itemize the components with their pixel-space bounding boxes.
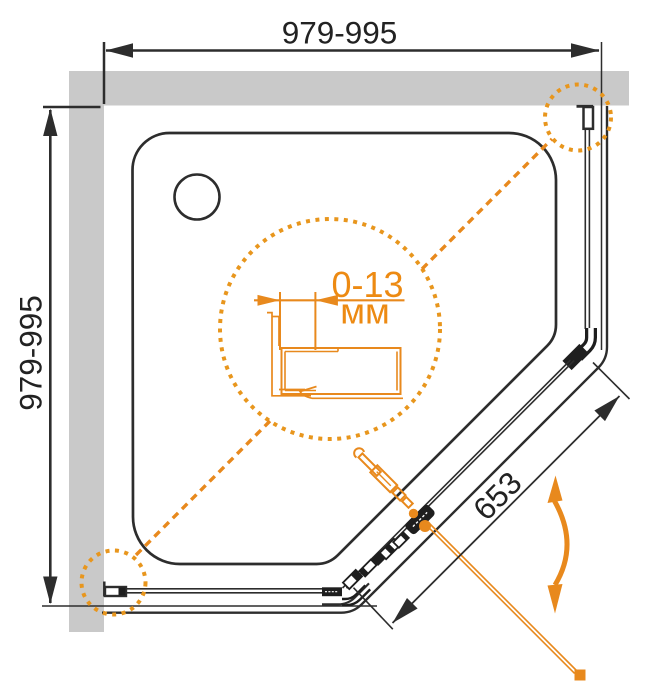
svg-text:979-995: 979-995 <box>13 295 49 411</box>
svg-text:мм: мм <box>340 290 390 331</box>
svg-text:979-995: 979-995 <box>282 15 398 51</box>
